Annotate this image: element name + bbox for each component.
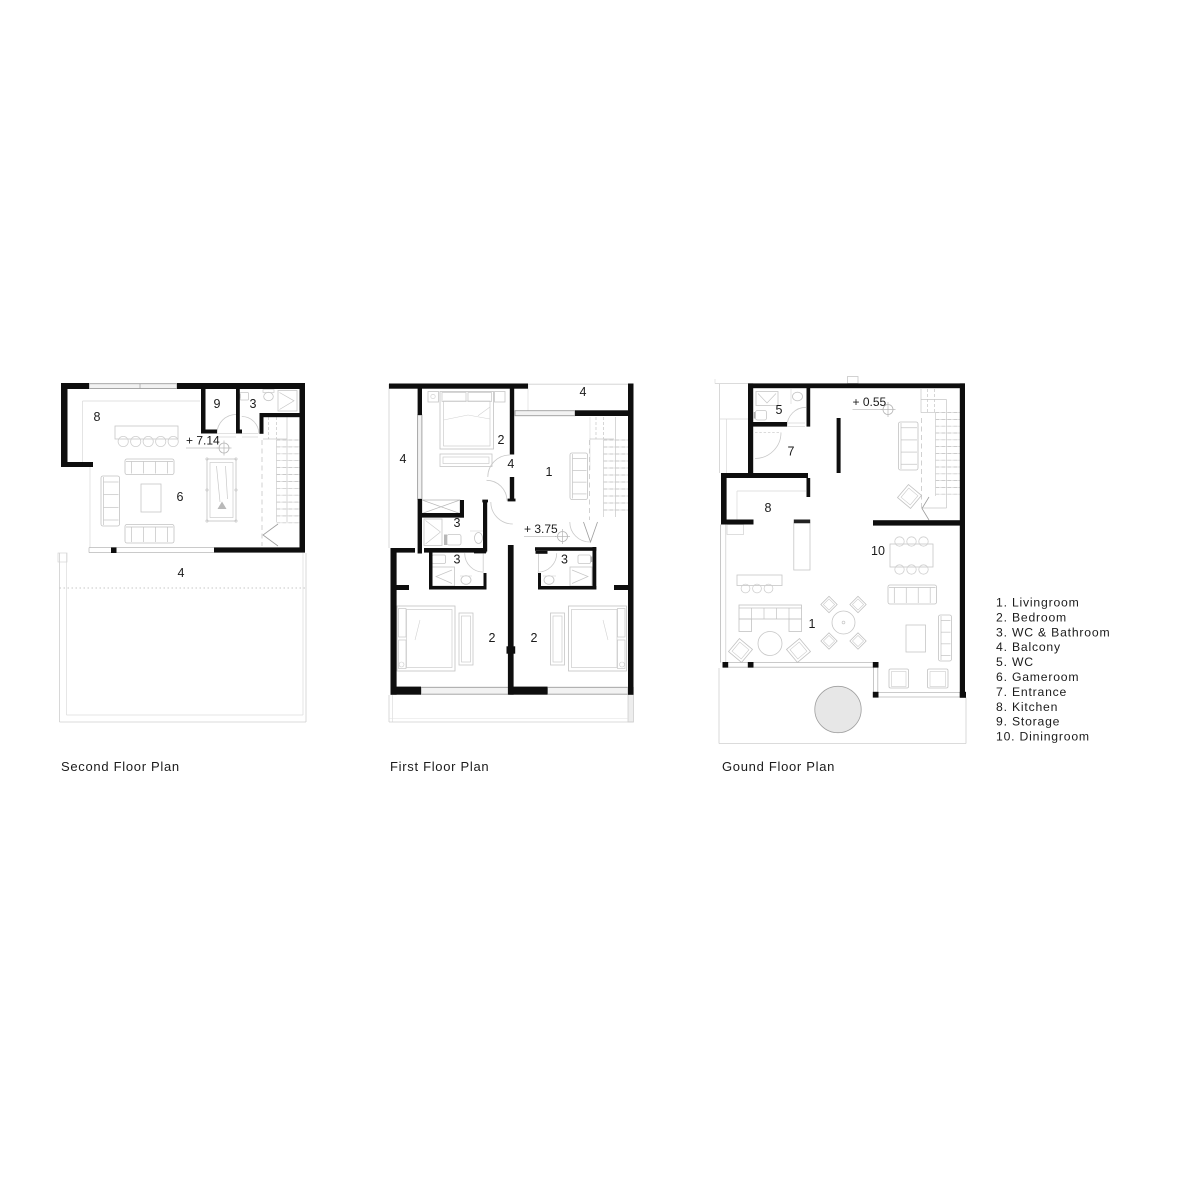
svg-text:9: 9 <box>214 397 221 411</box>
svg-text:9. Storage: 9. Storage <box>996 715 1060 729</box>
svg-text:3: 3 <box>454 516 461 530</box>
svg-text:2: 2 <box>489 631 496 645</box>
svg-text:4: 4 <box>580 385 587 399</box>
svg-text:First Floor Plan: First Floor Plan <box>390 759 489 774</box>
svg-text:4: 4 <box>400 452 407 466</box>
svg-text:7. Entrance: 7. Entrance <box>996 685 1067 699</box>
svg-text:8: 8 <box>94 410 101 424</box>
svg-text:6. Gameroom: 6. Gameroom <box>996 670 1079 684</box>
svg-text:+ 7.14: + 7.14 <box>186 434 220 448</box>
svg-text:3. WC & Bathroom: 3. WC & Bathroom <box>996 625 1110 639</box>
svg-text:Second Floor Plan: Second Floor Plan <box>61 759 180 774</box>
svg-text:5. WC: 5. WC <box>996 655 1034 669</box>
svg-text:3: 3 <box>561 553 568 567</box>
svg-text:4: 4 <box>178 566 185 580</box>
svg-text:5: 5 <box>776 403 783 417</box>
svg-text:4. Balcony: 4. Balcony <box>996 640 1061 654</box>
svg-text:7: 7 <box>788 445 795 459</box>
svg-text:1: 1 <box>809 617 816 631</box>
svg-text:3: 3 <box>250 397 257 411</box>
svg-text:8. Kitchen: 8. Kitchen <box>996 700 1058 714</box>
svg-text:2: 2 <box>531 631 538 645</box>
svg-text:Gound Floor Plan: Gound Floor Plan <box>722 759 835 774</box>
svg-text:6: 6 <box>177 490 184 504</box>
svg-text:10: 10 <box>871 544 885 558</box>
svg-text:10. Diningroom: 10. Diningroom <box>996 730 1090 744</box>
svg-text:1. Livingroom: 1. Livingroom <box>996 596 1080 610</box>
svg-text:8: 8 <box>765 501 772 515</box>
svg-text:+ 0.55: + 0.55 <box>853 395 887 409</box>
svg-text:2: 2 <box>498 433 505 447</box>
svg-text:3: 3 <box>454 553 461 567</box>
svg-text:1: 1 <box>546 465 553 479</box>
svg-text:2. Bedroom: 2. Bedroom <box>996 610 1067 624</box>
svg-text:4: 4 <box>507 457 514 471</box>
svg-text:+ 3.75: + 3.75 <box>524 522 558 536</box>
